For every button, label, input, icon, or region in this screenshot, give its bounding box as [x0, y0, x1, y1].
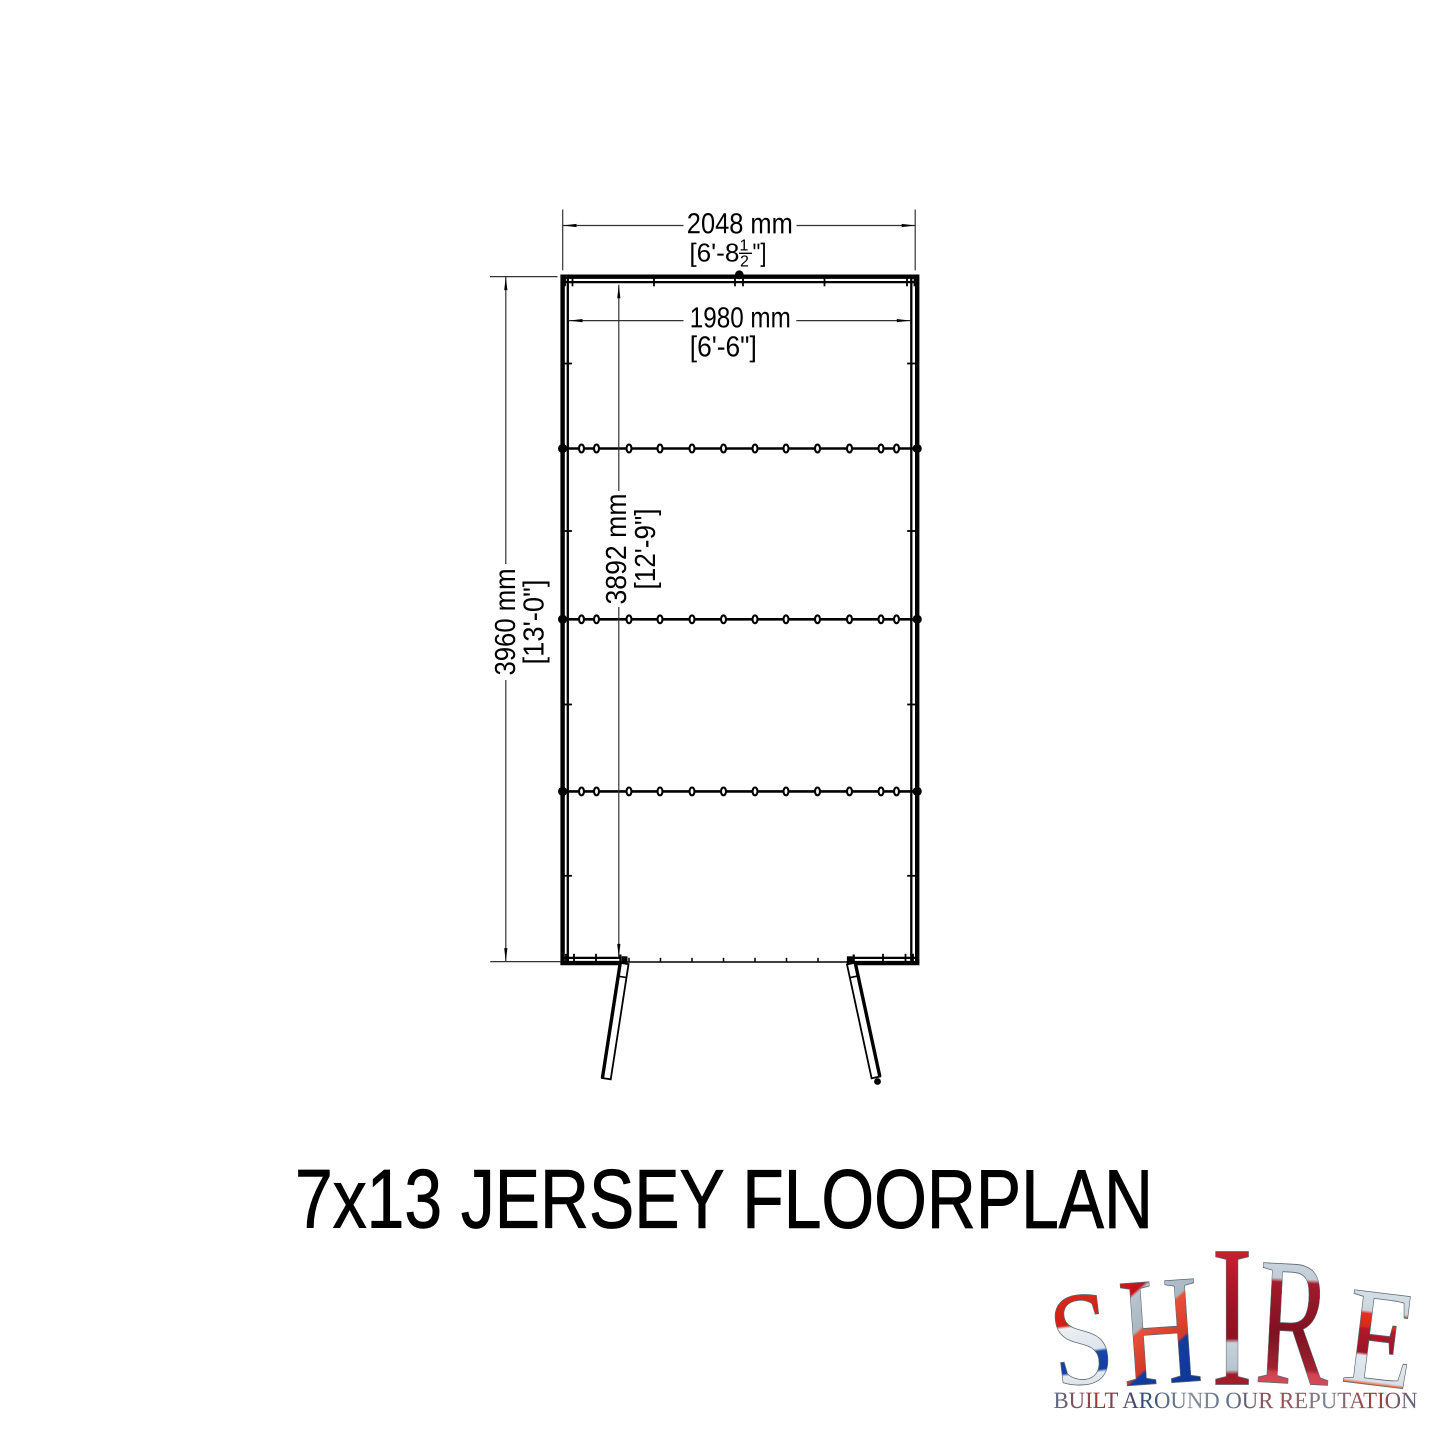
svg-text:2: 2 — [740, 254, 749, 271]
svg-text:1980 mm: 1980 mm — [690, 302, 791, 334]
svg-text:BUILT AROUND OUR REPUTATION: BUILT AROUND OUR REPUTATION — [1053, 1388, 1417, 1414]
svg-text:[13'-0"]: [13'-0"] — [518, 580, 550, 665]
svg-text:[12'-9"]: [12'-9"] — [630, 509, 662, 590]
svg-text:"]: "] — [752, 238, 766, 268]
svg-text:3960 mm: 3960 mm — [490, 569, 522, 676]
svg-text:3892 mm: 3892 mm — [601, 494, 633, 605]
svg-text:1: 1 — [739, 238, 748, 255]
svg-text:2048 mm: 2048 mm — [687, 208, 793, 240]
svg-text:[6'-6"]: [6'-6"] — [690, 331, 757, 363]
svg-text:7x13 JERSEY FLOORPLAN: 7x13 JERSEY FLOORPLAN — [295, 1152, 1153, 1246]
svg-text:[6'-8: [6'-8 — [689, 238, 739, 268]
